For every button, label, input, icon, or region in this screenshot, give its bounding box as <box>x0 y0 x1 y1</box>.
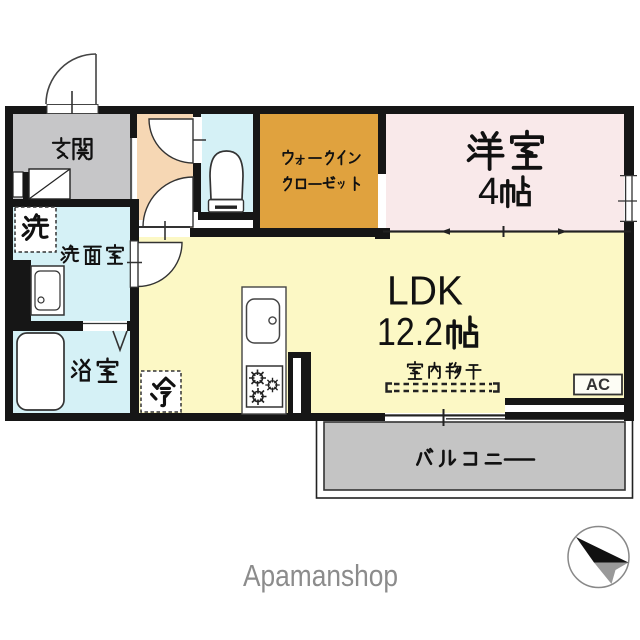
svg-text:Apamanshop: Apamanshop <box>243 558 398 593</box>
svg-text:4: 4 <box>478 171 499 213</box>
svg-text:LDK: LDK <box>387 268 463 314</box>
svg-text:AC: AC <box>586 376 610 394</box>
svg-text:12.2: 12.2 <box>377 311 443 354</box>
